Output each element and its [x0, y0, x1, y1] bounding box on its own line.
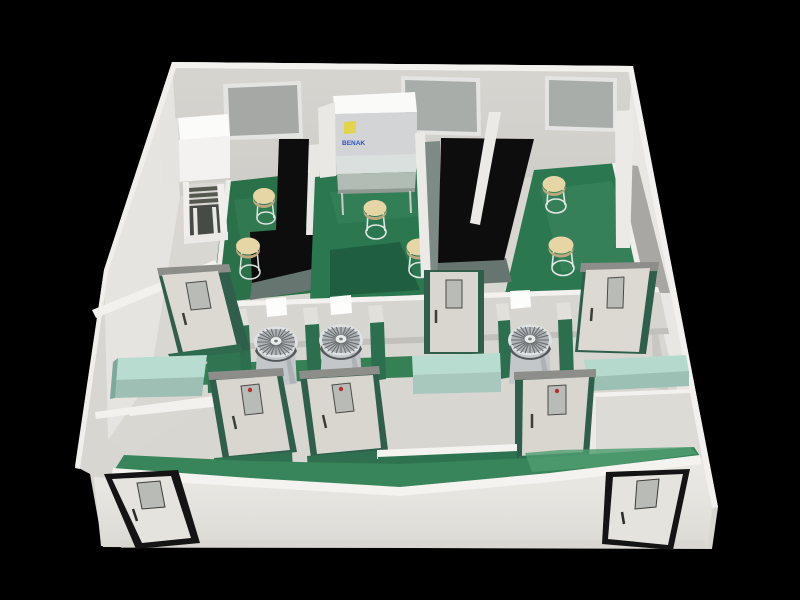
- svg-text:BENAK: BENAK: [342, 140, 365, 147]
